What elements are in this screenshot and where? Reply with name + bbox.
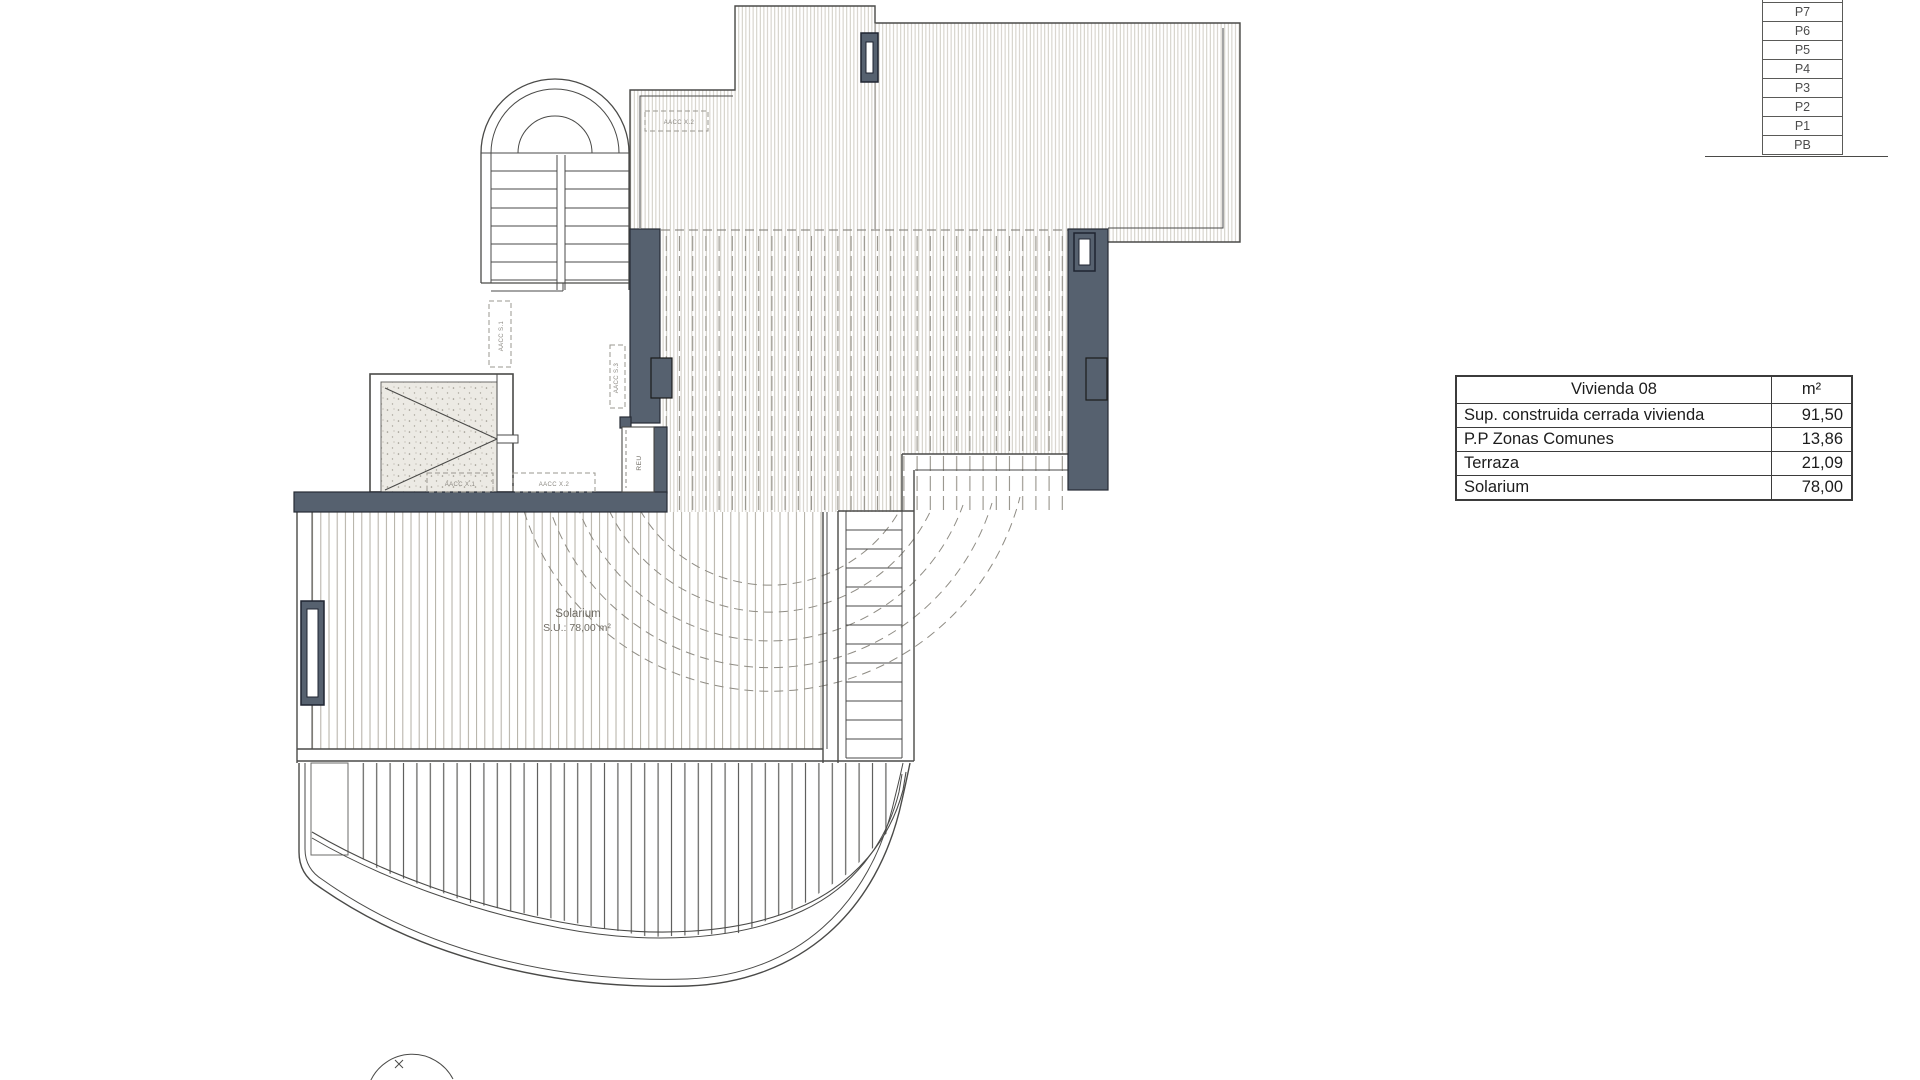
- aacc-roof-label: AACC X.2: [664, 120, 695, 126]
- area-row-value: 91,50: [1772, 404, 1851, 427]
- area-table-title: Vivienda 08: [1457, 377, 1772, 403]
- area-row-label: Terraza: [1457, 452, 1772, 475]
- aacc-s3-label: AACC S.3: [614, 362, 620, 393]
- level-stack: P7P6P5P4P3P2P1PB: [1762, 0, 1843, 155]
- area-row-value: 13,86: [1772, 428, 1851, 451]
- level-row-p5: P5: [1762, 41, 1843, 60]
- level-row-p1: P1: [1762, 117, 1843, 136]
- ground-line: [1705, 156, 1888, 157]
- solarium-title: Solarium: [555, 608, 600, 620]
- area-row-label: Sup. construida cerrada vivienda: [1457, 404, 1772, 427]
- level-row-p6: P6: [1762, 22, 1843, 41]
- level-row-pb: PB: [1762, 136, 1843, 155]
- level-row-p4: P4: [1762, 60, 1843, 79]
- stairwell: [481, 79, 629, 291]
- floor-plan-page: { "level_stack": { "floors": ["P7", "P6"…: [0, 0, 1920, 1080]
- level-row-p7: P7: [1762, 3, 1843, 22]
- area-row-label: Solarium: [1457, 476, 1772, 499]
- wall-niche-right: [1086, 358, 1107, 400]
- area-row-value: 21,09: [1772, 452, 1851, 475]
- aacc-x1-label: AACC X.1: [445, 482, 476, 488]
- area-table-row: Terraza21,09: [1457, 451, 1851, 475]
- reu-shaft: REU: [622, 427, 654, 492]
- aacc-s1-label: AACC S.1: [499, 320, 505, 351]
- area-table-row: P.P Zonas Comunes13,86: [1457, 427, 1851, 451]
- deck-slats: [352, 763, 890, 937]
- area-table-header: Vivienda 08 m²: [1457, 377, 1851, 403]
- area-table-unit-header: m²: [1772, 377, 1851, 403]
- area-table-body: Sup. construida cerrada vivienda91,50P.P…: [1457, 403, 1851, 499]
- aacc-x2-label: AACC X.2: [539, 482, 570, 488]
- elevator-shaft: [370, 374, 518, 492]
- level-row-p3: P3: [1762, 79, 1843, 98]
- elevator-handle: [497, 435, 518, 443]
- floor-plan-drawing: REU AACC X.2 AACC S.1 AACC S.3 AACC X.1 …: [0, 0, 1920, 1080]
- interior-stair-treads: [846, 530, 902, 758]
- area-table-row: Sup. construida cerrada vivienda91,50: [1457, 403, 1851, 427]
- solarium-area-value: S.U.: 78,00 m²: [543, 622, 611, 634]
- wall-niche-left: [651, 358, 672, 398]
- area-row-label: P.P Zonas Comunes: [1457, 428, 1772, 451]
- area-row-value: 78,00: [1772, 476, 1851, 499]
- reu-label: REU: [636, 455, 643, 470]
- area-table: Vivienda 08 m² Sup. construida cerrada v…: [1455, 375, 1853, 501]
- area-table-row: Solarium78,00: [1457, 475, 1851, 499]
- wall-horizontal-bar: [294, 492, 667, 512]
- level-row-p2: P2: [1762, 98, 1843, 117]
